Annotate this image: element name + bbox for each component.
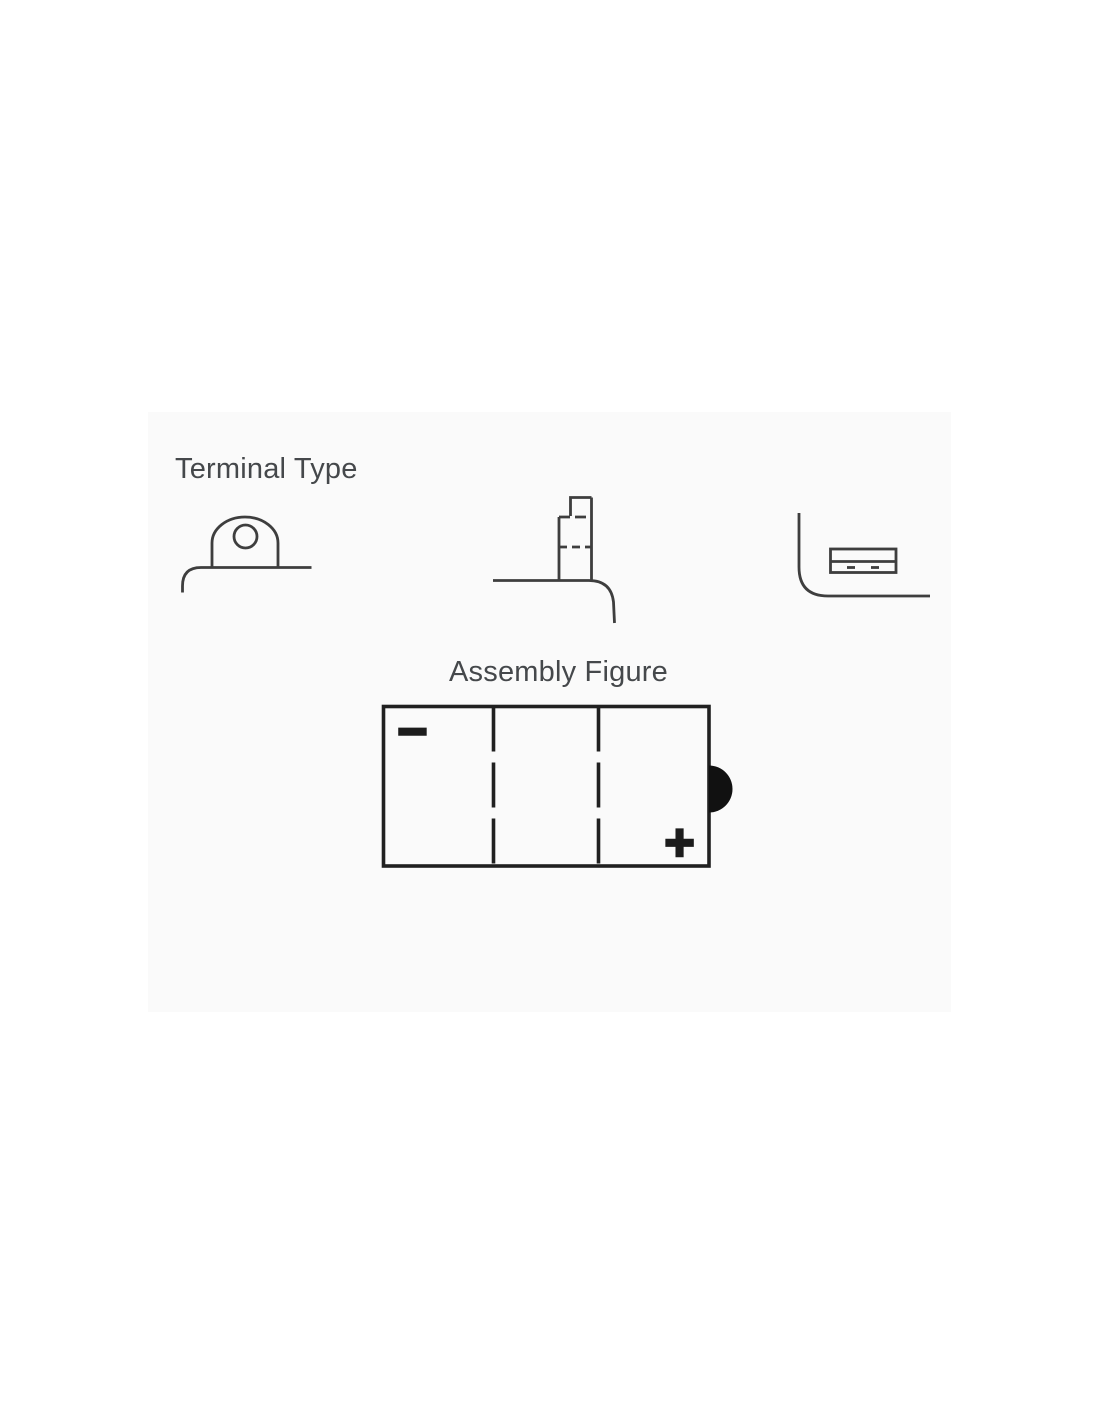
diagram-canvas: − + — [0, 0, 1100, 1422]
post-terminal-baseline — [493, 581, 615, 624]
flag-terminal-baseline — [183, 568, 312, 593]
battery-case-outline — [384, 707, 710, 867]
side-bump — [709, 766, 733, 813]
flag-terminal-bolt-hole — [234, 525, 257, 548]
flag-terminal-with-bolt-hole-icon — [183, 517, 312, 593]
flat-recessed-terminal-icon — [799, 513, 930, 596]
stepped-post-terminal-icon — [493, 498, 615, 624]
negative-terminal-symbol: − — [397, 703, 427, 761]
post-top-cap — [571, 498, 592, 517]
recessed-terminal-corner-line — [799, 513, 930, 596]
page: Terminal Type Assembly Figure — [0, 0, 1100, 1422]
positive-terminal-symbol: + — [664, 814, 694, 872]
battery-assembly-figure: − + — [384, 703, 733, 872]
